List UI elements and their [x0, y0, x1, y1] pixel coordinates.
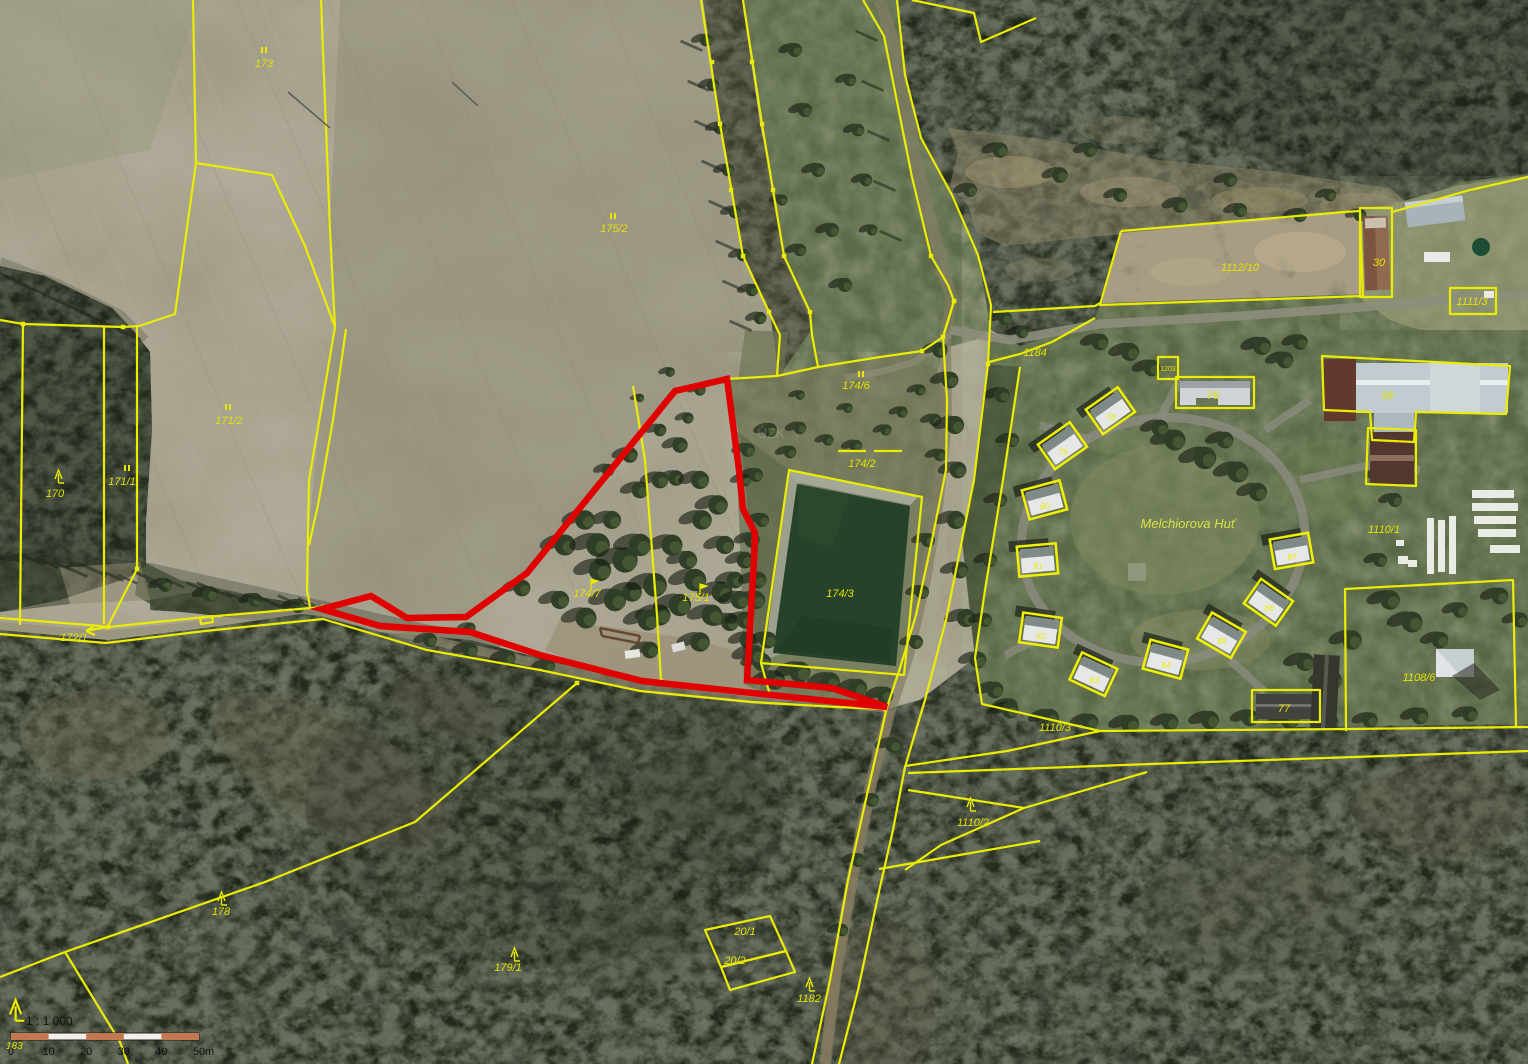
- svg-text:83: 83: [1089, 675, 1099, 685]
- svg-text:171/2: 171/2: [215, 415, 243, 427]
- svg-text:1 : 1 000: 1 : 1 000: [26, 1014, 73, 1028]
- svg-text:84: 84: [1161, 660, 1171, 670]
- svg-text:80: 80: [1040, 501, 1050, 511]
- svg-text:174/3: 174/3: [826, 588, 854, 600]
- svg-text:50: 50: [193, 1046, 205, 1058]
- svg-text:170: 170: [46, 488, 65, 500]
- svg-text:179/1: 179/1: [494, 962, 522, 974]
- svg-text:76: 76: [1207, 390, 1220, 402]
- svg-text:30: 30: [118, 1046, 130, 1058]
- svg-text:20: 20: [80, 1046, 92, 1058]
- svg-text:30: 30: [1373, 257, 1386, 269]
- svg-text:172/1: 172/1: [60, 632, 88, 644]
- svg-text:1203: 1203: [1160, 366, 1176, 373]
- svg-text:174/7: 174/7: [573, 588, 601, 600]
- svg-text:1112/10: 1112/10: [1221, 262, 1260, 274]
- svg-text:39: 39: [1381, 390, 1393, 402]
- svg-text:79: 79: [1058, 447, 1068, 457]
- svg-text:85: 85: [1217, 636, 1227, 646]
- svg-text:173: 173: [255, 58, 274, 70]
- svg-text:1110/2: 1110/2: [957, 817, 989, 829]
- svg-text:1184: 1184: [1023, 347, 1047, 359]
- svg-text:174/2: 174/2: [848, 458, 876, 470]
- svg-text:m: m: [205, 1046, 214, 1058]
- svg-text:1110/3: 1110/3: [1039, 722, 1072, 734]
- svg-text:1111/3: 1111/3: [1456, 296, 1488, 308]
- svg-text:20/1: 20/1: [733, 926, 755, 938]
- svg-text:Melchiorova Huť: Melchiorova Huť: [1141, 516, 1237, 531]
- svg-text:0: 0: [8, 1046, 14, 1058]
- svg-text:1110/1: 1110/1: [1368, 524, 1400, 536]
- svg-text:78: 78: [1106, 412, 1116, 422]
- svg-text:175/2: 175/2: [600, 223, 628, 235]
- svg-text:82: 82: [1036, 631, 1046, 641]
- svg-text:77: 77: [1278, 703, 1291, 715]
- svg-text:20/2: 20/2: [723, 955, 745, 967]
- svg-text:1182: 1182: [797, 993, 821, 1005]
- svg-text:10: 10: [42, 1046, 54, 1058]
- svg-text:ÚZK: ÚZK: [757, 425, 786, 441]
- svg-text:178: 178: [212, 906, 231, 918]
- svg-text:171/1: 171/1: [108, 476, 136, 488]
- svg-text:174/6: 174/6: [842, 380, 870, 392]
- svg-text:81: 81: [1033, 561, 1043, 571]
- svg-text:87: 87: [1287, 552, 1297, 562]
- svg-text:40: 40: [155, 1046, 167, 1058]
- svg-text:86: 86: [1264, 603, 1274, 613]
- svg-text:175/1: 175/1: [682, 592, 710, 604]
- svg-text:1108/6: 1108/6: [1403, 672, 1437, 684]
